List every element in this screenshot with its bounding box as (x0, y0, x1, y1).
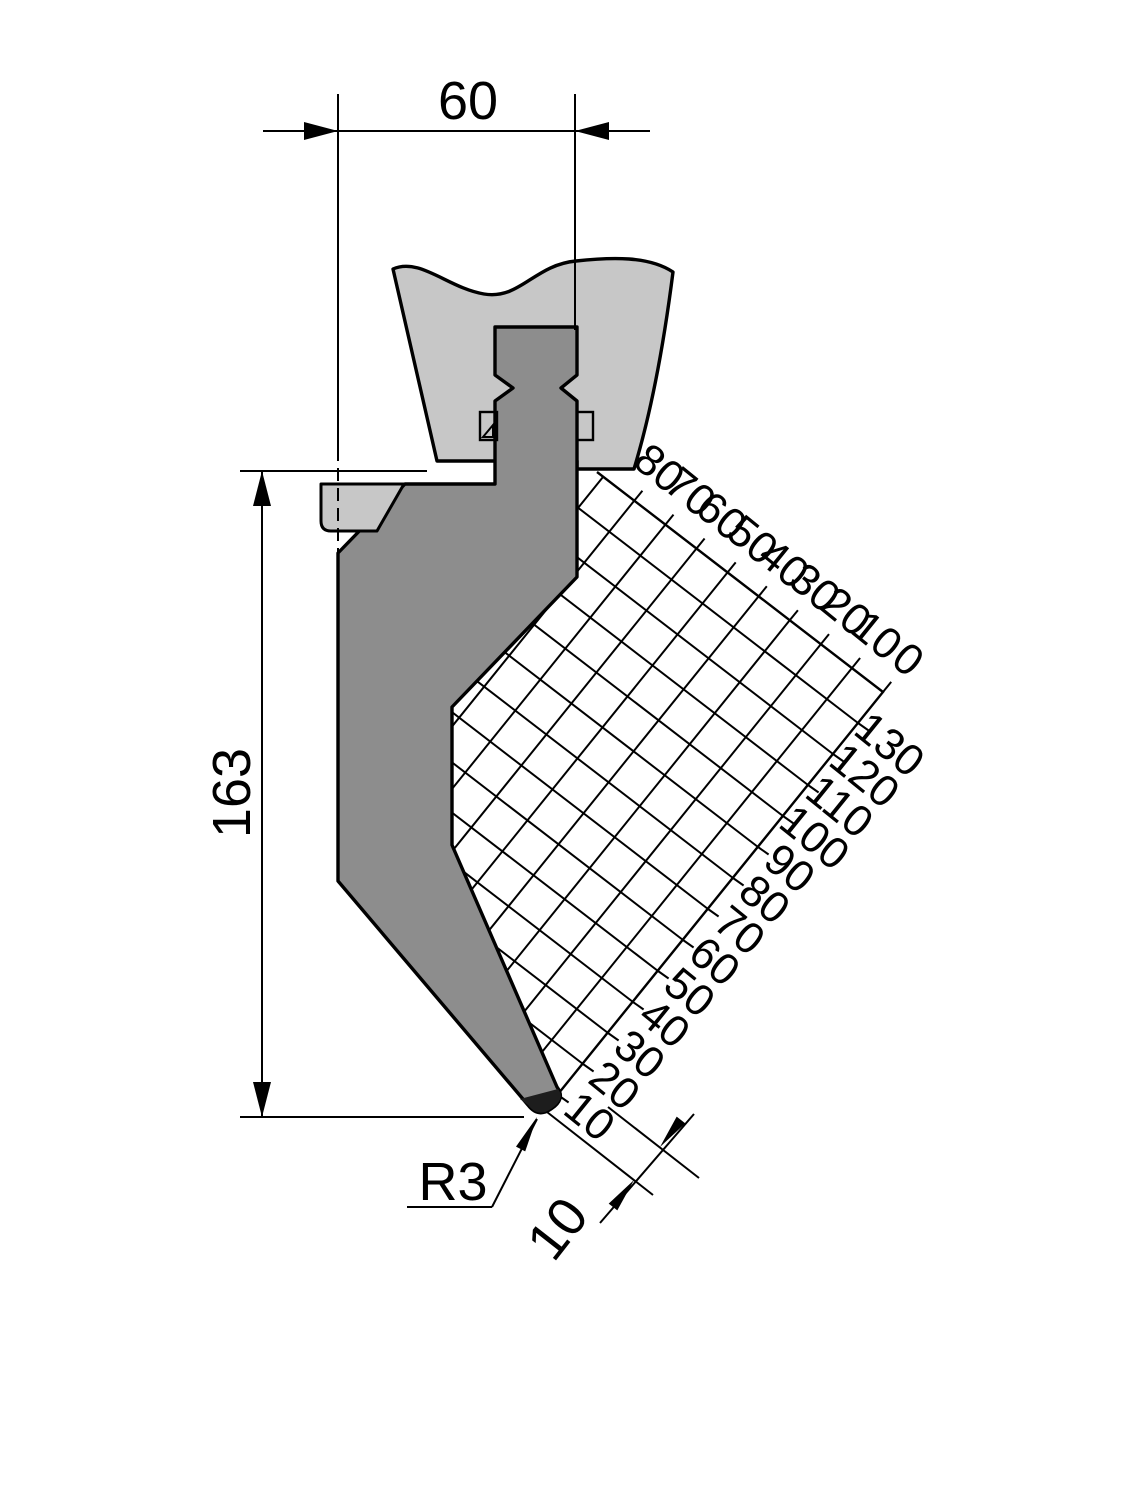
ruler-right-labels: 130120110100908070605040302010 (555, 703, 933, 1152)
ruler-top-tick (883, 682, 891, 692)
radius-callout: R3 (407, 1117, 537, 1212)
ruler-top-tick (759, 586, 767, 596)
ruler-right-tick (683, 940, 694, 948)
ruler-top-tick (790, 610, 798, 620)
ruler-right-tick (708, 909, 719, 917)
dimension-width-value: 60 (438, 71, 498, 131)
arrowhead-top (253, 471, 271, 506)
extension-line-b (608, 1107, 699, 1178)
punch-technical-drawing: 80706050403020100 1301201101009080706050… (0, 0, 1124, 1500)
arrowhead-left (304, 122, 338, 140)
ruler-top-tick (634, 491, 642, 501)
ruler-right-tick (633, 1002, 644, 1010)
ruler-right-tick (583, 1064, 594, 1072)
ruler-right-tick (733, 878, 744, 886)
ruler-top-tick (665, 515, 673, 525)
ruler-top-tick (728, 562, 736, 572)
arrowhead-right (575, 122, 609, 140)
tip-offset-value: 10 (516, 1187, 600, 1271)
arrowhead-bottom (253, 1082, 271, 1117)
arrowhead-b (660, 1117, 685, 1147)
dimension-height-value: 163 (202, 748, 262, 838)
ruler-top-labels: 80706050403020100 (625, 434, 933, 686)
leader-arrowhead (516, 1117, 537, 1151)
drawing-page: 80706050403020100 1301201101009080706050… (0, 0, 1124, 1500)
arrowhead-a (609, 1180, 634, 1210)
ruler-right-tick (658, 971, 669, 979)
ruler-top-tick (696, 539, 704, 549)
ruler-top-tick (852, 658, 860, 668)
ruler-right-tick (758, 847, 769, 855)
ruler-top-tick (821, 634, 829, 644)
radius-value: R3 (418, 1152, 487, 1212)
ruler-right-tick (608, 1033, 619, 1041)
